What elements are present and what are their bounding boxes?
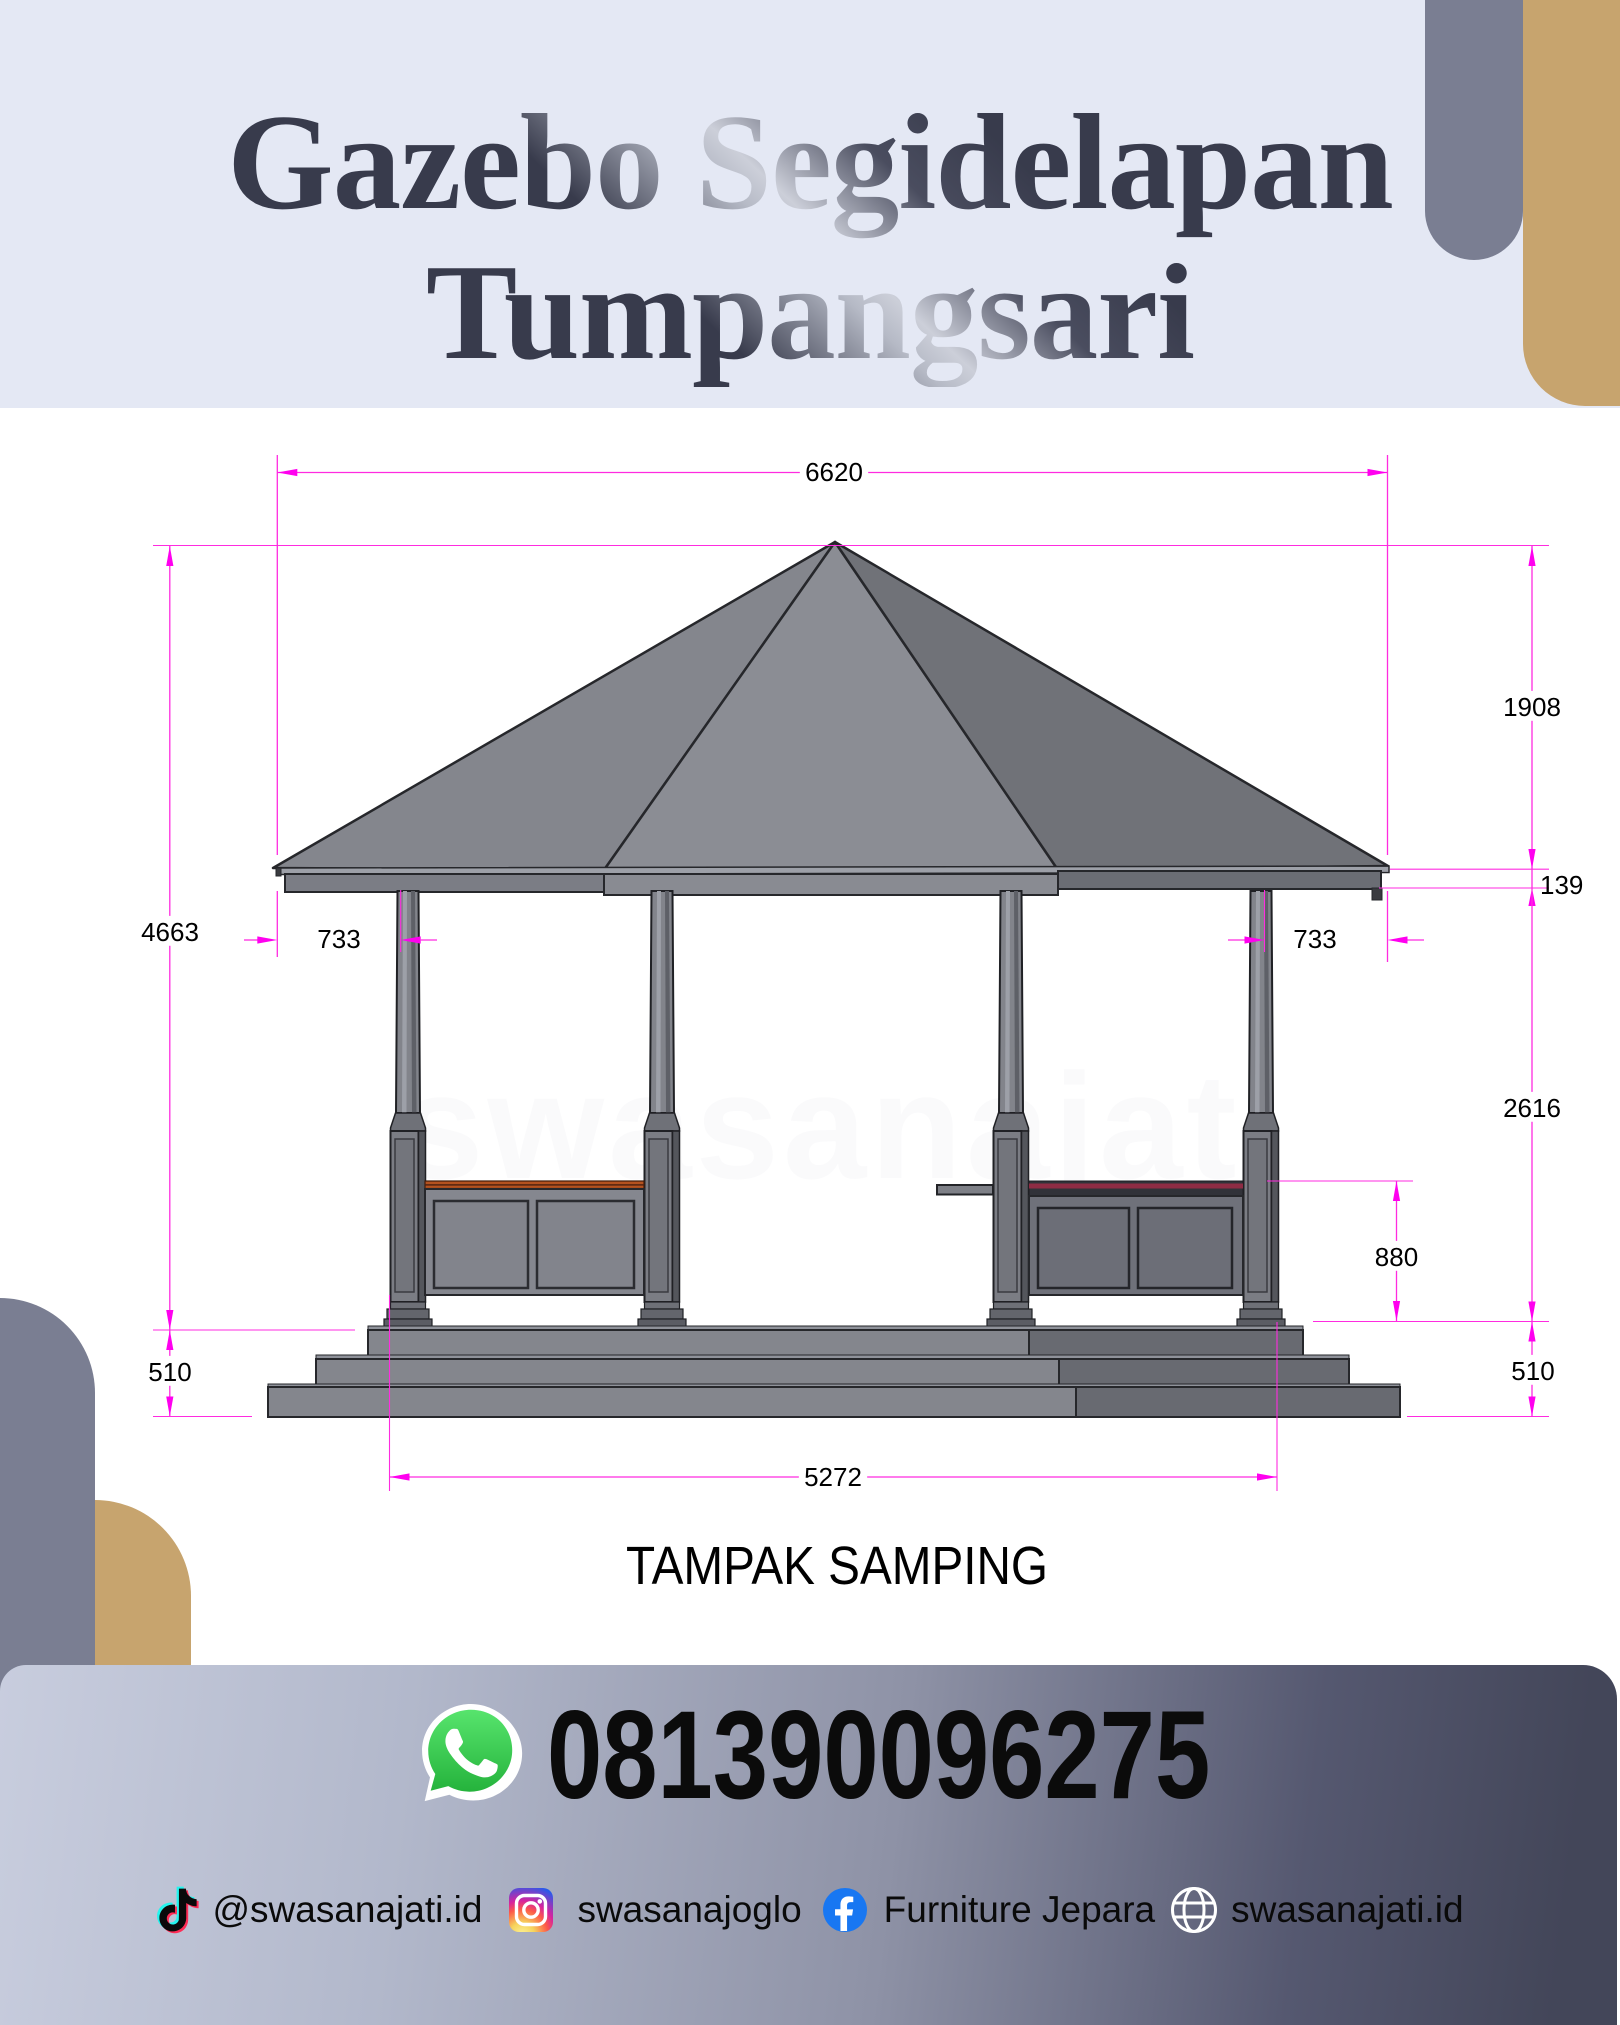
svg-text:139: 139: [1540, 870, 1583, 900]
svg-text:5272: 5272: [804, 1462, 862, 1492]
svg-text:2616: 2616: [1503, 1093, 1561, 1123]
svg-text:733: 733: [1293, 924, 1336, 954]
svg-text:880: 880: [1375, 1242, 1418, 1272]
svg-text:4663: 4663: [141, 917, 199, 947]
svg-text:510: 510: [1511, 1356, 1554, 1386]
svg-text:TAMPAK SAMPING: TAMPAK SAMPING: [626, 1536, 1048, 1596]
svg-text:733: 733: [317, 924, 360, 954]
svg-text:510: 510: [148, 1357, 191, 1387]
svg-text:6620: 6620: [805, 457, 863, 487]
svg-text:1908: 1908: [1503, 692, 1561, 722]
